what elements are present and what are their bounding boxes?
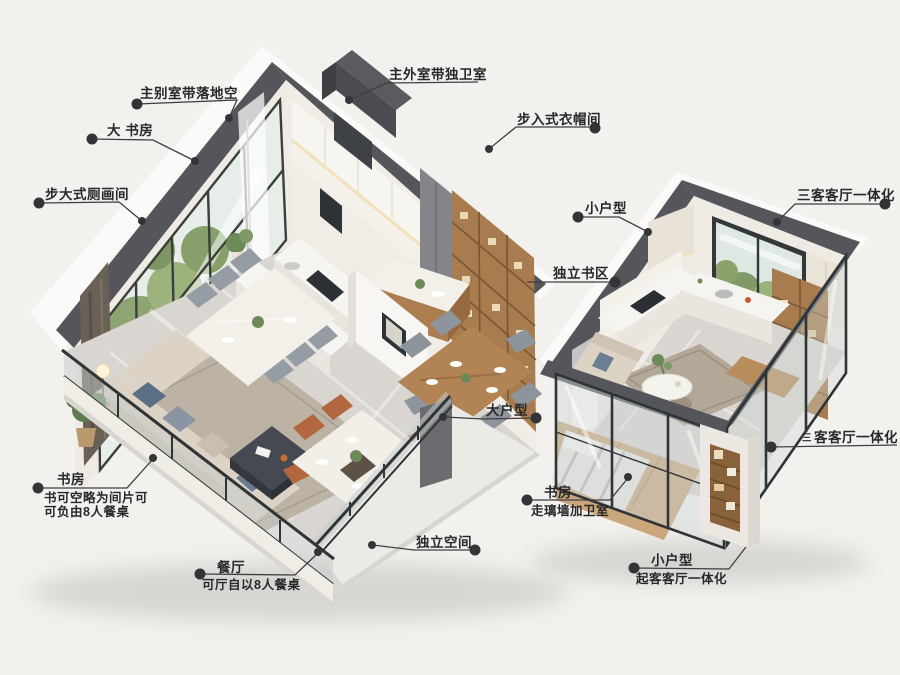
callout-label: 独立空间 (416, 534, 472, 550)
floorplan-canvas: 主别室带落地空 大 书房 步大式厕画间 主外室带独卫室 步入式衣帽间 小户型 (0, 0, 900, 675)
callout-subtext: 可厅自以8人餐桌 (202, 577, 300, 592)
callout-subtext: 可负由8人餐桌 (44, 504, 129, 519)
callout-subtext: 起客客厅一体化 (635, 571, 727, 586)
callout-label: 小户型 (585, 200, 627, 216)
callout-label: 书房 (57, 471, 85, 487)
callout-label: 大 书房 (107, 122, 153, 138)
callout-label: 步入式衣帽间 (517, 111, 601, 127)
callout-label: 餐厅 (216, 559, 245, 575)
callout-label: 大户型 (486, 402, 528, 418)
table-plant (252, 316, 264, 328)
callout-prefix: 三 (802, 433, 812, 444)
callout-label: 客客厅一体化 (813, 429, 898, 445)
callout-label: 独立书区 (553, 265, 609, 281)
callout-label: 书房 (544, 484, 572, 500)
callout-subtext: 书可空略为间片可 (44, 490, 148, 505)
callout-label: 主外室带独卫室 (389, 66, 487, 82)
callout-label: 小户型 (651, 552, 693, 568)
bookshelf-column (700, 424, 760, 548)
callout-label: 主别室带落地空 (140, 85, 238, 101)
sink (284, 262, 300, 270)
callout-subtext: 走璃墙加卫室 (531, 503, 609, 518)
callout-label: 三客客厅一体化 (797, 187, 895, 203)
sink (715, 290, 733, 299)
callout-dot (225, 114, 233, 122)
annotated-floorplan-image: 主别室带落地空 大 书房 步大式厕画间 主外室带独卫室 步入式衣帽间 小户型 (0, 0, 900, 675)
callout-label: 步大式厕画间 (45, 186, 129, 202)
